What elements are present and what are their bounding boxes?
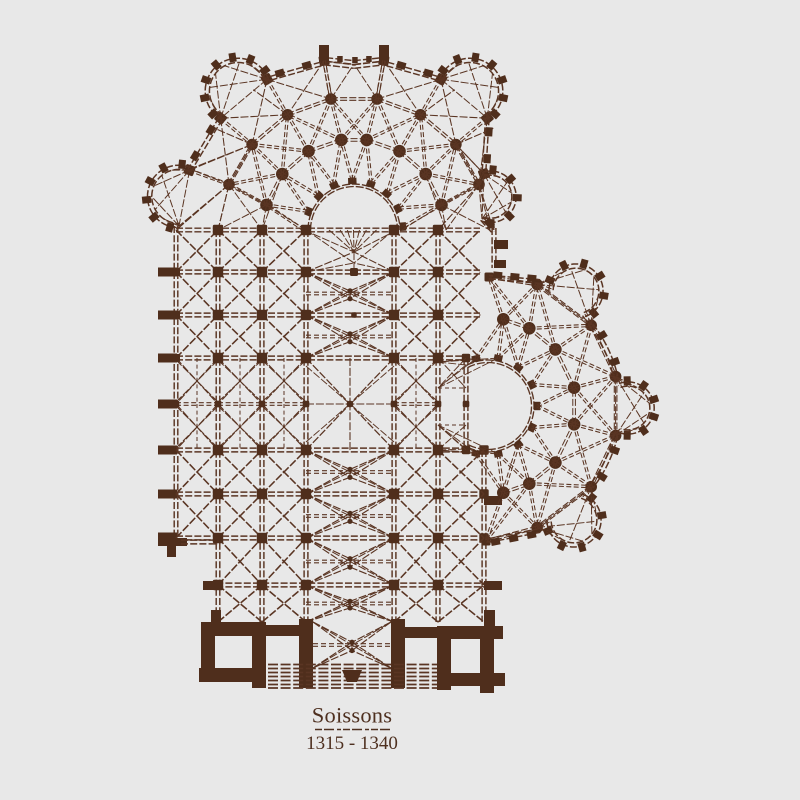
svg-text:Soissons: Soissons xyxy=(312,703,392,728)
svg-text:1315 - 1340: 1315 - 1340 xyxy=(306,733,398,754)
